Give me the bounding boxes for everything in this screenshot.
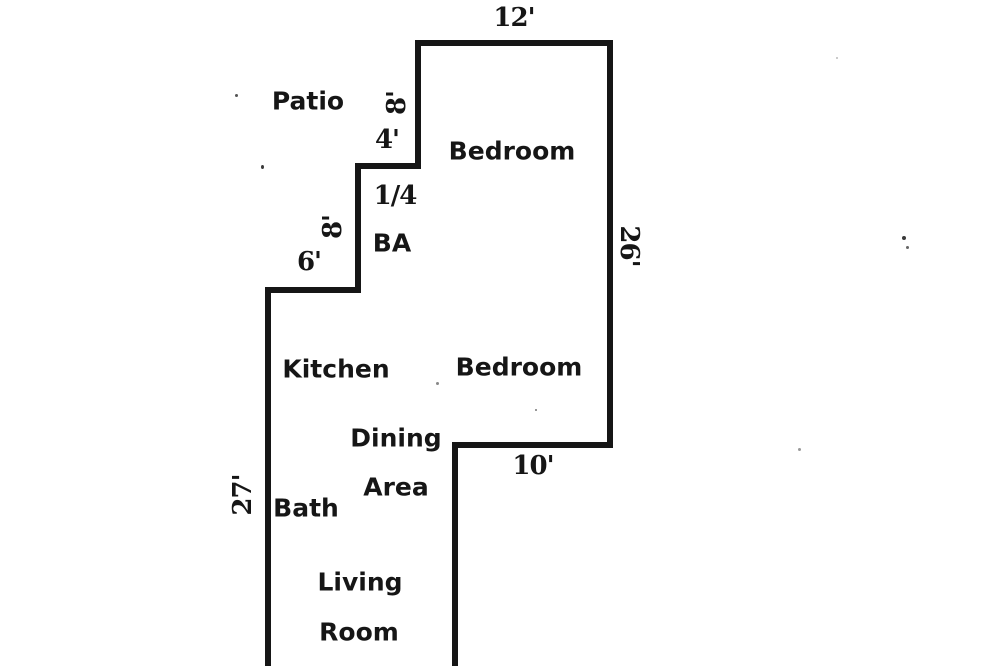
scan-speck	[906, 246, 909, 249]
room-label-living-line1: Living	[317, 568, 402, 597]
dimension-right-wall-height: 26'	[614, 225, 644, 266]
room-label-bedroom-top: Bedroom	[449, 137, 576, 166]
room-label-bedroom-middle: Bedroom	[456, 353, 583, 382]
room-label-dining-line1: Dining	[350, 424, 441, 453]
dimension-ba-wall-height: 8'	[318, 215, 348, 239]
dimension-kitchen-step-width: 6'	[297, 247, 321, 277]
floorplan-outline	[0, 0, 1000, 666]
room-label-dining-line2: Area	[363, 473, 429, 502]
scan-speck	[798, 448, 801, 451]
room-label-living-line2: Room	[319, 618, 399, 647]
dimension-patio-wall-height: 8'	[382, 91, 412, 115]
scan-speck	[535, 409, 537, 411]
scan-speck	[261, 165, 264, 169]
room-label-kitchen: Kitchen	[282, 355, 389, 384]
room-label-quarter-bath-line1: 1/4	[374, 181, 417, 211]
room-label-quarter-bath-line2: BA	[373, 229, 411, 258]
scan-speck	[836, 57, 838, 59]
scan-speck	[902, 236, 906, 240]
dimension-left-wall-height: 27'	[228, 474, 258, 515]
dimension-step-width: 4'	[375, 125, 399, 155]
room-label-bath: Bath	[273, 494, 339, 523]
dimension-top-bedroom-width: 12'	[493, 3, 534, 33]
room-label-patio: Patio	[272, 87, 344, 116]
dimension-middle-bedroom-width: 10'	[512, 451, 553, 481]
scan-speck	[436, 382, 439, 385]
floor-plan-page: 12' 8' 4' 8' 6' 26' 10' 27' Patio Bedroo…	[0, 0, 1000, 666]
scan-speck	[235, 94, 238, 97]
